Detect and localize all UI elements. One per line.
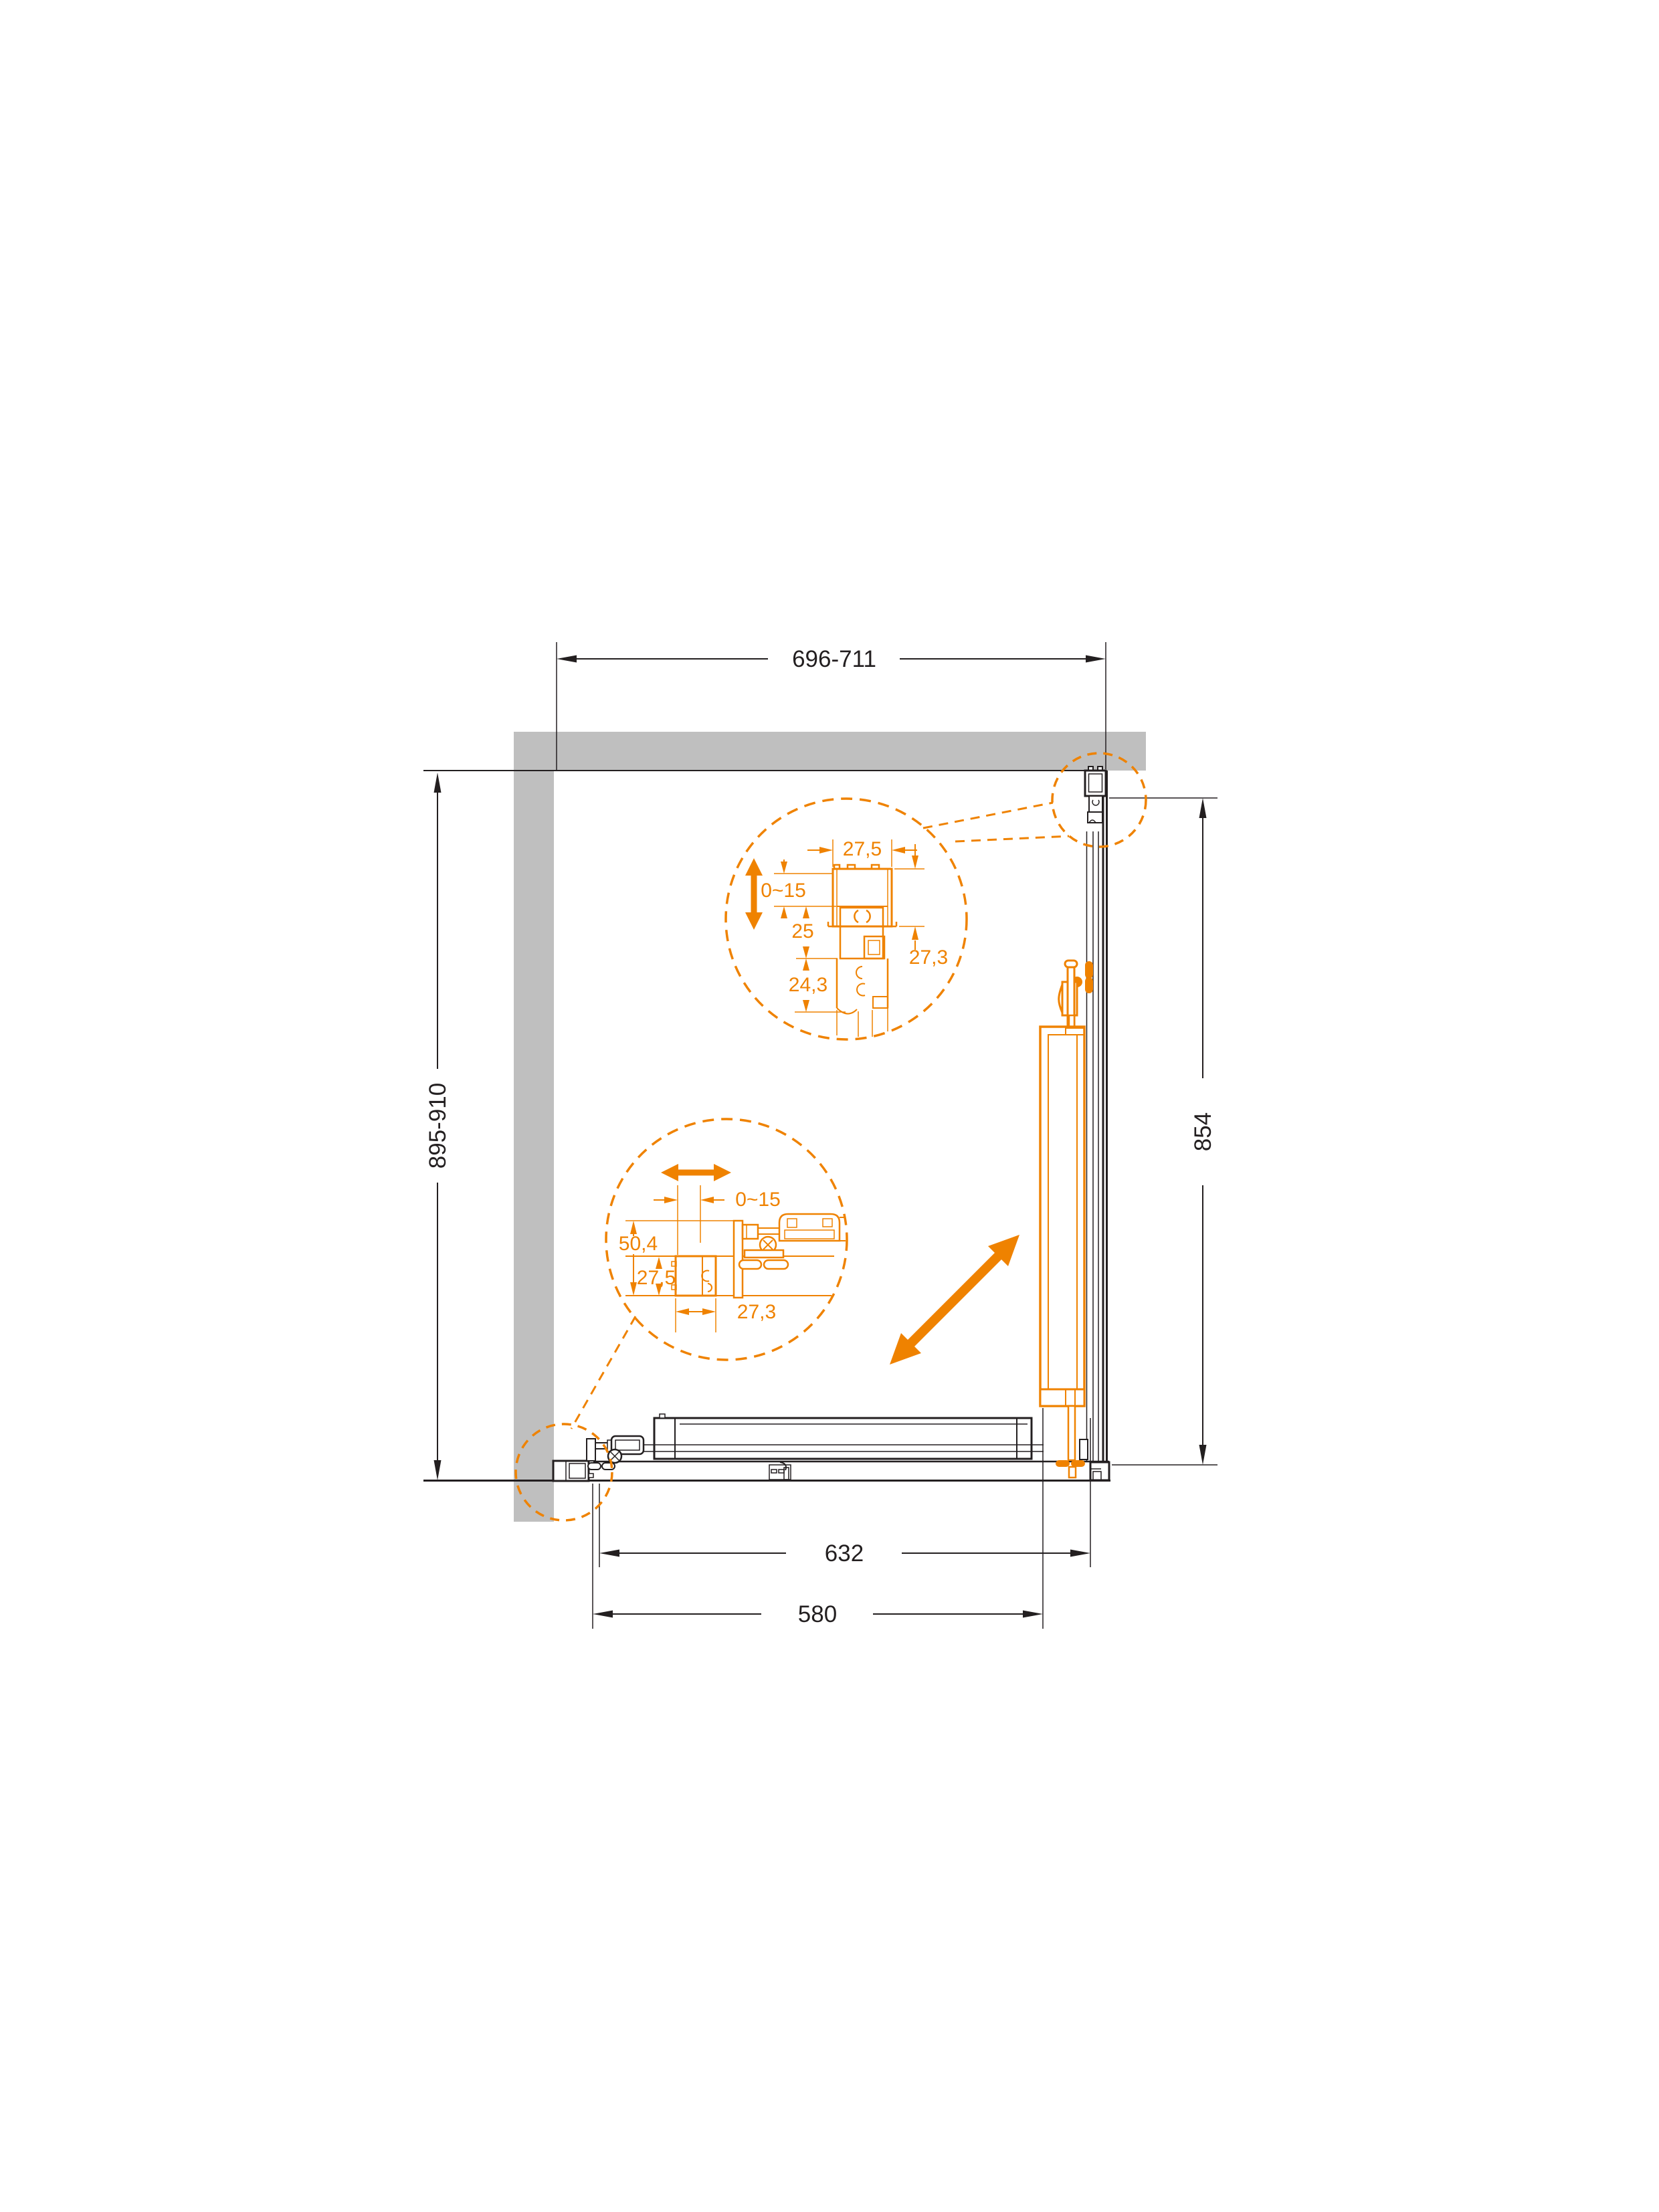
- roller-icon: [1071, 1460, 1085, 1467]
- detail-circle-top: [726, 799, 967, 1039]
- arrowhead-right-icon: [1023, 1611, 1043, 1618]
- arrowhead-left-icon: [599, 1550, 619, 1557]
- adjust-vertical-double-arrow-icon: [745, 858, 763, 930]
- arrowhead-right-icon: [702, 1308, 716, 1315]
- roller-icon: [1056, 1460, 1070, 1467]
- detail-bottom-profile-width-label: 27,3: [737, 1301, 776, 1323]
- detail-bottom-profile-height-label: 27,5: [637, 1267, 676, 1289]
- dimension-label-bottom-glass: 580: [798, 1601, 837, 1627]
- callout-leader-line: [955, 836, 1069, 841]
- detail-bottom-adjustment-label: 0~15: [735, 1189, 781, 1211]
- arrowhead-up-icon: [803, 959, 809, 971]
- door-glass-panel: [1040, 1027, 1084, 1406]
- roller-icon: [1085, 977, 1093, 993]
- arrowhead-down-icon: [803, 946, 809, 959]
- arrowhead-up-icon: [1199, 798, 1207, 818]
- dimension-label-left-depth: 895-910: [425, 1083, 451, 1169]
- arrowhead-up-icon: [912, 926, 918, 940]
- arrowhead-down-icon: [1199, 1445, 1207, 1465]
- wall-structure: [423, 732, 1146, 1522]
- detail-top-profile-width-label: 27,5: [843, 838, 882, 860]
- arrowhead-up-icon: [630, 1221, 637, 1234]
- detail-top-profile-depth-label: 27,3: [909, 946, 948, 969]
- technical-drawing-canvas: 696-711 895-910 854 632 580: [0, 0, 1659, 2212]
- callout-leader-line: [923, 803, 1053, 828]
- wall-top-band: [514, 732, 1146, 771]
- arrowhead-left-icon: [676, 1308, 689, 1315]
- detail-top-lower-inset-label: 24,3: [789, 974, 827, 996]
- arrowhead-down-icon: [781, 862, 787, 874]
- dimension-right-height: 854: [1109, 798, 1217, 1465]
- bottom-door-assembly: [553, 1414, 1109, 1481]
- arrowhead-down-icon: [912, 856, 918, 869]
- arrowhead-left-icon: [892, 847, 905, 853]
- sliding-door-panel-orange: [1040, 961, 1093, 1478]
- adjust-horizontal-double-arrow-icon: [661, 1164, 731, 1181]
- callout-leader-line: [571, 1316, 636, 1429]
- roller-icon: [588, 1463, 601, 1470]
- wall-profile-section: [676, 1256, 716, 1296]
- dimension-label-bottom-track: 632: [825, 1540, 864, 1567]
- arrowhead-right-icon: [819, 847, 833, 853]
- detail-top-upper-inset-label: 25: [791, 920, 813, 942]
- arrowhead-down-icon: [803, 1000, 809, 1012]
- arrowhead-up-icon: [803, 906, 809, 918]
- arrowhead-right-icon: [664, 1197, 678, 1203]
- arrowhead-left-icon: [593, 1611, 613, 1618]
- arrowhead-down-icon: [434, 1460, 442, 1480]
- inner-profile-section: [840, 908, 883, 959]
- roller-icon: [739, 1260, 761, 1269]
- dimension-label-top-width: 696-711: [792, 646, 876, 672]
- wall-left-band: [514, 732, 554, 1522]
- detail-callout-bottom: 0~15 50,4 27,5 27,3: [606, 1119, 847, 1360]
- arrowhead-up-icon: [434, 773, 442, 793]
- arrowhead-left-icon: [557, 656, 577, 663]
- roller-icon: [1085, 961, 1093, 979]
- detail-bottom-assembly-height-label: 50,4: [619, 1233, 658, 1255]
- slide-direction-double-arrow-icon: [890, 1235, 1019, 1365]
- roller-icon: [764, 1260, 788, 1269]
- arrowhead-left-icon: [700, 1197, 714, 1203]
- detail-top-adjustment-label: 0~15: [761, 880, 806, 902]
- arrowhead-up-icon: [781, 906, 787, 918]
- fixed-panel-right: [1085, 767, 1107, 1480]
- arrowhead-right-icon: [1086, 656, 1106, 663]
- arrowhead-down-icon: [630, 1282, 637, 1296]
- detail-callout-top: 27,5 27,3 0~15 25 24,3: [726, 799, 967, 1039]
- dimension-label-right-height: 854: [1190, 1112, 1216, 1151]
- mount-bracket: [734, 1221, 743, 1298]
- arrowhead-right-icon: [1070, 1550, 1090, 1557]
